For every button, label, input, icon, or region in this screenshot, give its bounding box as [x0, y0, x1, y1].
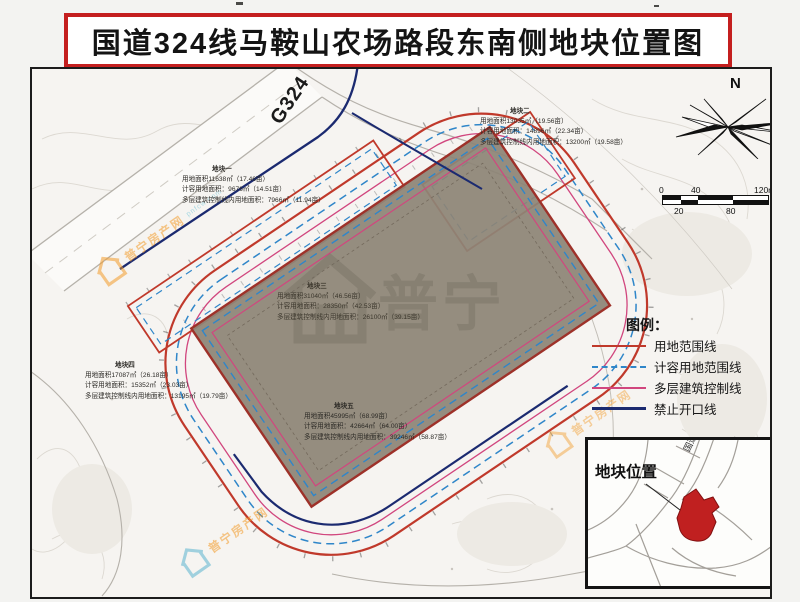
map-frame: G324 N 0: [30, 67, 772, 599]
plot-annotation-5: 地块五 用地面积45995㎡（68.99亩） 计容用地面积：42664㎡（64.…: [304, 402, 451, 443]
inset-title: 地块位置: [595, 460, 657, 482]
north-label: N: [730, 75, 741, 92]
scanned-map-page: 国道324线马鞍山农场路段东南侧地块位置图: [0, 0, 800, 602]
title-bar: 国道324线马鞍山农场路段东南侧地块位置图: [64, 13, 732, 68]
scale-tick-40: 40: [691, 185, 700, 195]
building-control-line-icon: [592, 387, 646, 389]
scan-speck: [236, 2, 243, 5]
scale-tick-20: 20: [674, 206, 683, 216]
scale-bar: 0 40 120m 20 80: [658, 185, 772, 216]
legend-item: 用地范围线: [592, 335, 764, 356]
plot-annotation-3: 地块三 用地面积31040㎡（46.56亩） 计容用地面积：28350㎡（42.…: [277, 282, 424, 323]
scale-tick-120: 120m: [754, 185, 772, 195]
plot-annotation-2: 地块二 用地面积13035㎡（19.56亩） 计容用地面积：14896㎡（22.…: [480, 107, 627, 148]
plot-ratio-line-icon: [592, 366, 646, 368]
plot-annotation-4: 地块四 用地面积17087㎡（26.18亩） 计容用地面积：15352㎡（23.…: [85, 361, 232, 402]
legend-item: 禁止开口线: [592, 398, 764, 419]
scale-tick-80: 80: [726, 206, 735, 216]
compass: N: [668, 75, 772, 159]
legend-item: 计容用地范围线: [592, 356, 764, 377]
scale-bar-rule: [662, 195, 769, 205]
inset-location-map: 地块位置 国道324线: [585, 437, 772, 589]
inset-leader-line: [646, 484, 680, 510]
legend-title: 图例：: [626, 315, 764, 335]
scan-speck: [654, 5, 659, 7]
page-title: 国道324线马鞍山农场路段东南侧地块位置图: [92, 20, 704, 62]
no-opening-line-icon: [592, 407, 646, 410]
legend: 图例： 用地范围线 计容用地范围线 多层建筑控制线 禁止开口线 2021年1月: [592, 315, 764, 452]
plot-annotation-1: 地块一 用地面积11638㎡（17.46亩） 计容用地面积：9676㎡（14.5…: [182, 165, 325, 206]
compass-rose-icon: [668, 75, 772, 159]
land-use-line-icon: [592, 345, 646, 347]
scale-tick-0: 0: [659, 185, 664, 195]
inset-plot-shape: [677, 489, 719, 541]
legend-item: 多层建筑控制线: [592, 377, 764, 398]
